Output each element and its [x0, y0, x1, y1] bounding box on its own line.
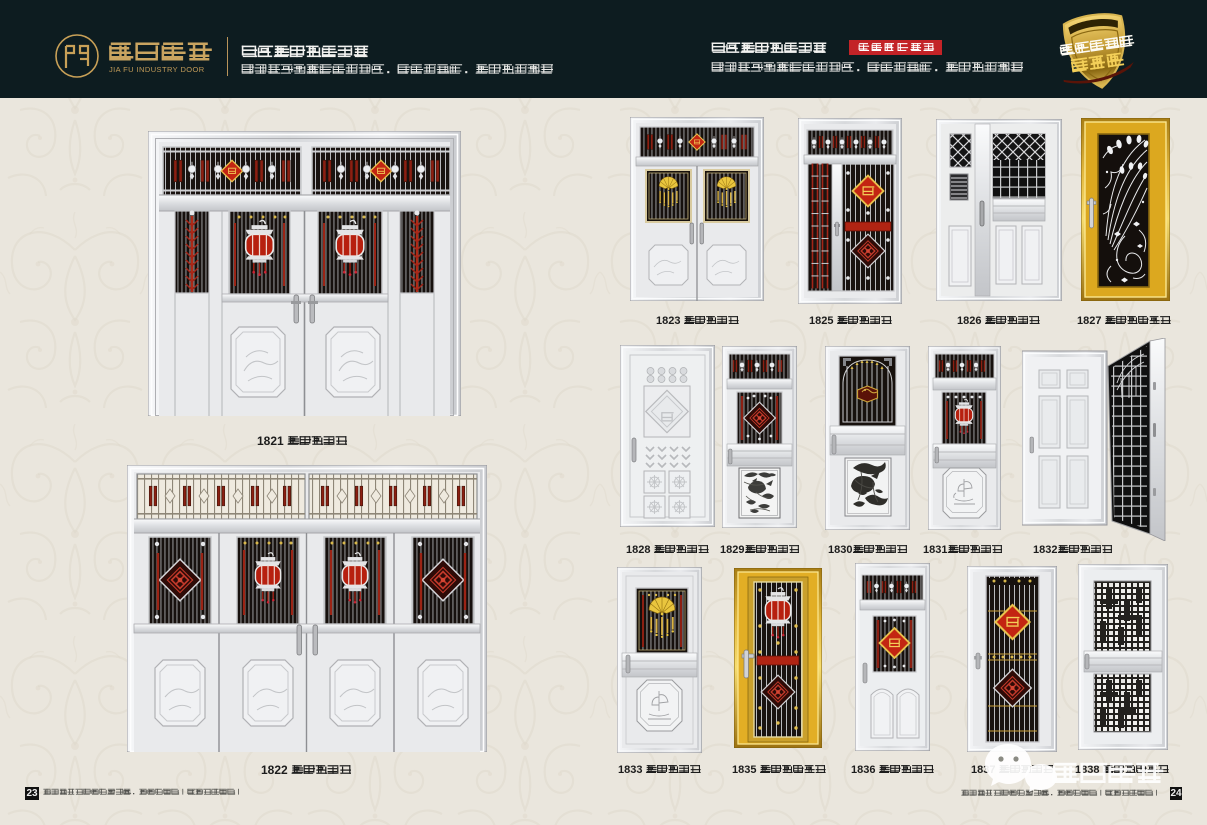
svg-text:1827: 1827 — [1077, 315, 1101, 326]
svg-text:1829: 1829 — [720, 544, 744, 555]
svg-text:1835: 1835 — [732, 764, 756, 775]
svg-text:1832: 1832 — [1033, 544, 1057, 555]
svg-text:1822: 1822 — [261, 764, 288, 776]
svg-text:1833: 1833 — [618, 764, 642, 775]
svg-text:1821: 1821 — [257, 435, 284, 447]
svg-text:1823: 1823 — [656, 315, 680, 326]
svg-text:1826: 1826 — [957, 315, 981, 326]
svg-text:1825: 1825 — [809, 315, 833, 326]
svg-text:1836: 1836 — [851, 764, 875, 775]
svg-text:1831: 1831 — [923, 544, 947, 555]
svg-text:1828: 1828 — [626, 544, 650, 555]
svg-text:1830: 1830 — [828, 544, 852, 555]
